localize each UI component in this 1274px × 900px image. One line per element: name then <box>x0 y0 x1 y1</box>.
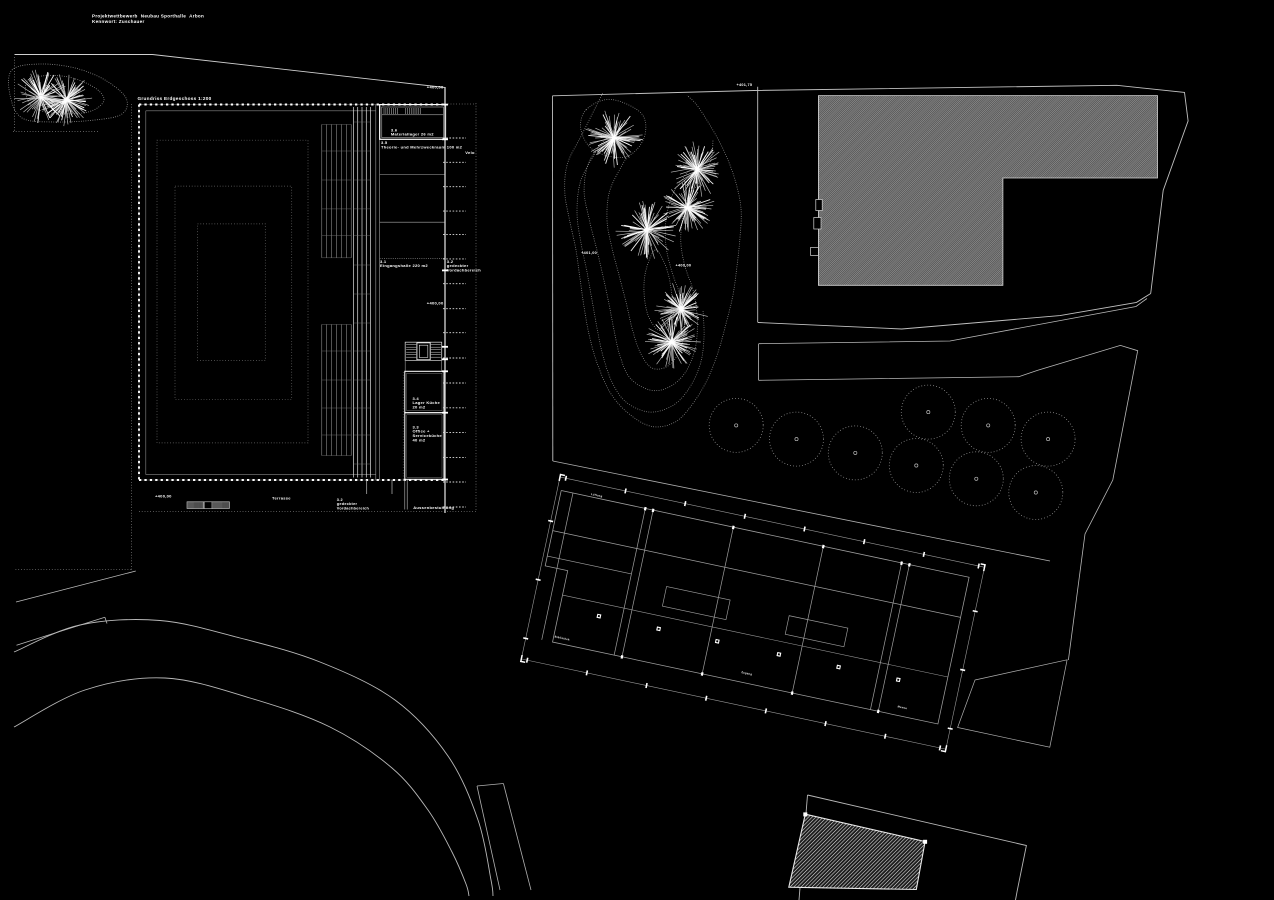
svg-text:+401,00: +401,00 <box>581 251 597 255</box>
svg-text:+401,75: +401,75 <box>737 83 753 87</box>
svg-text:20 m2: 20 m2 <box>413 405 426 410</box>
svg-text:+400,50: +400,50 <box>427 85 444 90</box>
svg-text:Eingangshalle 220 m2: Eingangshalle 220 m2 <box>380 263 428 268</box>
svg-text:40 m2: 40 m2 <box>413 438 426 443</box>
svg-text:Aussenbestuhlung: Aussenbestuhlung <box>413 505 454 510</box>
svg-text:Terrasse: Terrasse <box>272 496 291 501</box>
svg-text:Kennwort: Zuschauer: Kennwort: Zuschauer <box>92 19 145 24</box>
svg-text:Velo: Velo <box>465 150 475 155</box>
svg-text:+400,00: +400,00 <box>155 493 172 498</box>
svg-text:Vordachbereich: Vordachbereich <box>337 506 370 510</box>
svg-text:+400,00: +400,00 <box>427 300 444 305</box>
svg-text:Vordachbereich: Vordachbereich <box>447 268 481 273</box>
svg-text:Materiallager 26 m2: Materiallager 26 m2 <box>391 132 434 137</box>
svg-text:Theorie- und Mehrzweckraum 100: Theorie- und Mehrzweckraum 100 m2 <box>381 145 463 150</box>
svg-text:Grundriss Erdgeschoss 1:200: Grundriss Erdgeschoss 1:200 <box>138 96 212 101</box>
svg-text:+400,00: +400,00 <box>676 263 692 267</box>
svg-text:Projektwettbewerb Neubau Spor: Projektwettbewerb Neubau Sporthalle Arbo… <box>92 14 204 19</box>
